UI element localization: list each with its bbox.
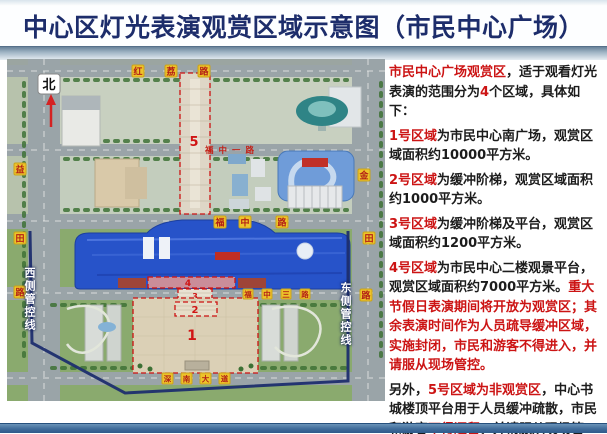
info-panel: 市民中心广场观赏区，适于观看灯光表演的范围分为4个区域，具体如下： 1号区域为市…	[389, 63, 602, 421]
road-sign-jintian-0: 金	[358, 169, 370, 182]
road-sign-yitian-1: 田	[14, 232, 26, 245]
svg-text:南: 南	[183, 374, 191, 384]
civic-center-red-ridge	[215, 252, 240, 260]
title-bar: 中心区灯光表演观赏区域示意图（市民中心广场）	[0, 6, 607, 46]
road-sign-jintian-2: 路	[360, 289, 372, 302]
zone4-paragraph: 4号区域为市民中心二楼观景平台，观赏区域面积约7000平方米。重大节假日表演期间…	[389, 259, 602, 376]
zone1-name: 1号区域	[389, 129, 437, 144]
zone-count: 4	[480, 85, 489, 100]
road-sign-shennan-0: 深	[162, 373, 173, 384]
svg-text:金: 金	[358, 170, 369, 182]
road-sign-fuzhong3-0: 福	[243, 289, 253, 299]
svg-text:荔: 荔	[165, 66, 175, 78]
svg-text:田: 田	[15, 234, 24, 245]
road-sign-fuzhong3-2: 三	[281, 289, 291, 299]
svg-text:红: 红	[133, 66, 142, 78]
zone3-name: 3号区域	[389, 217, 437, 232]
page-frame: 中心区灯光表演观赏区域示意图（市民中心广场）	[0, 0, 607, 434]
svg-text:道: 道	[221, 374, 229, 384]
map-svg: 5 4	[7, 59, 385, 401]
svg-text:大: 大	[202, 374, 210, 384]
zone-5-label: 5	[189, 135, 198, 150]
svg-text:田: 田	[364, 234, 373, 245]
road-sign-hongli-2: 路	[198, 65, 210, 78]
bottom-bar	[0, 423, 607, 433]
concert-hall-building	[288, 186, 342, 208]
site-map: 5 4	[7, 59, 385, 401]
zone2-paragraph: 2号区域为缓冲阶梯，观赏区域面积约1000平方米。	[389, 171, 602, 210]
road-sign-shennan-1: 南	[181, 373, 192, 384]
beige-building	[95, 159, 147, 207]
road-sign-fuzhong3-3: 路	[300, 289, 310, 299]
road-sign-shennan-3: 道	[219, 373, 230, 384]
svg-text:福: 福	[243, 289, 252, 299]
road-label-fuzhong1: 福中一路	[204, 145, 259, 156]
overview-paragraph: 市民中心广场观赏区，适于观看灯光表演的范围分为4个区域，具体如下：	[389, 63, 602, 122]
svg-text:路: 路	[361, 290, 371, 302]
zone-4-label: 4	[185, 279, 191, 289]
road-sign-shennan-2: 大	[200, 373, 211, 384]
road-sign-fuzhong3-1: 中	[262, 289, 272, 299]
road-sign-jintian-1: 田	[363, 232, 375, 245]
overview-highlight: 市民中心广场观赏区	[389, 65, 506, 80]
svg-text:路: 路	[199, 66, 209, 78]
svg-text:益: 益	[15, 164, 24, 176]
zone5-name: 5号区域为非观赏区	[428, 383, 541, 398]
zone5-lead: 另外，	[389, 383, 428, 398]
white-tower-building	[62, 96, 100, 146]
road-sign-fuzhong-2: 路	[276, 216, 288, 229]
zone2-name: 2号区域	[389, 173, 437, 188]
svg-text:深: 深	[164, 374, 172, 384]
svg-text:中: 中	[263, 289, 271, 299]
zone-4-platform	[118, 277, 266, 288]
east-control-line-label: 东侧管控线	[340, 282, 351, 347]
road-sign-hongli-1: 荔	[165, 65, 177, 78]
zone-2-label: 2	[192, 305, 199, 316]
zone-1-label: 1	[187, 328, 197, 344]
svg-text:福: 福	[214, 217, 224, 229]
west-control-line-label: 西侧管控线	[24, 267, 35, 332]
park-pond	[98, 322, 116, 332]
zone3-paragraph: 3号区域为缓冲阶梯及平台，观赏区域面积约1200平方米。	[389, 215, 602, 254]
road-sign-fuzhong-1: 中	[239, 216, 251, 229]
page-title: 中心区灯光表演观赏区域示意图（市民中心广场）	[23, 8, 584, 44]
north-label: 北	[42, 78, 55, 93]
road-sign-fuzhong-0: 福	[214, 216, 226, 229]
svg-text:路: 路	[301, 289, 309, 299]
title-separator	[0, 46, 607, 60]
svg-text:三: 三	[282, 290, 290, 299]
road-sign-yitian-0: 益	[14, 163, 26, 176]
zone1-paragraph: 1号区域为市民中心南广场，观赏区域面积约10000平方米。	[389, 127, 602, 166]
road-sign-hongli-0: 红	[132, 65, 144, 78]
svg-text:中: 中	[240, 217, 249, 229]
zone4-name: 4号区域	[389, 261, 437, 276]
svg-text:路: 路	[277, 217, 287, 229]
